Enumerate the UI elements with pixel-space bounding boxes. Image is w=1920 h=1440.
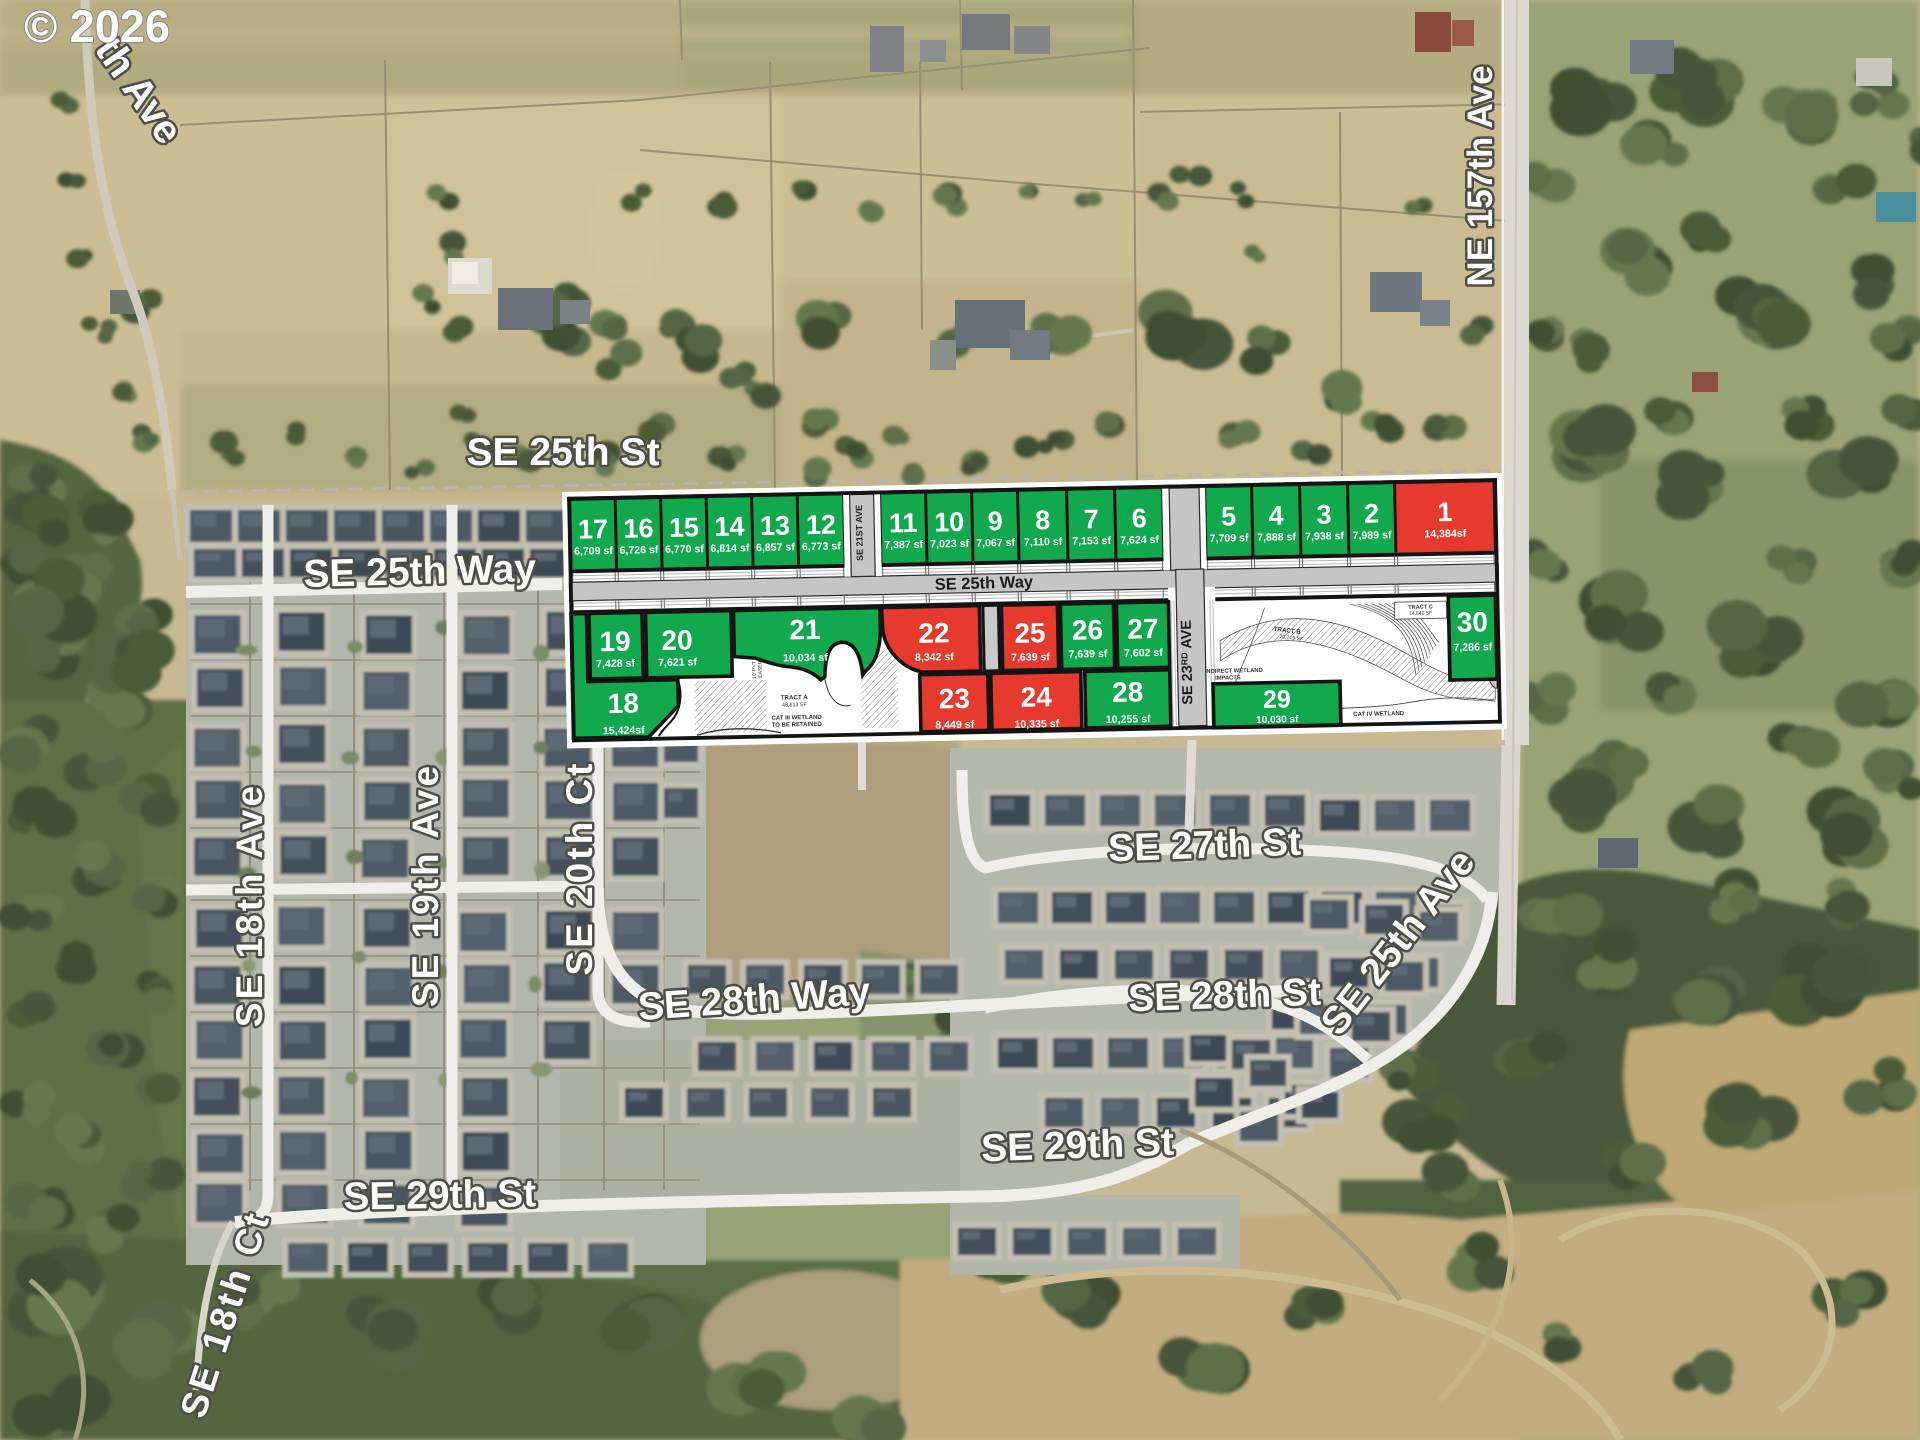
svg-text:7: 7 [1083, 504, 1099, 534]
svg-text:7,067 sf: 7,067 sf [976, 537, 1016, 550]
svg-text:3: 3 [1316, 499, 1332, 529]
svg-text:30: 30 [1456, 606, 1488, 638]
svg-text:29: 29 [1263, 685, 1291, 714]
svg-text:© 2026: © 2026 [24, 1, 170, 52]
svg-text:6,770 sf: 6,770 sf [665, 543, 705, 556]
svg-text:SE 28th St: SE 28th St [1127, 971, 1321, 1021]
svg-text:26: 26 [1072, 614, 1104, 646]
svg-text:7,428 sf: 7,428 sf [596, 658, 636, 671]
svg-text:7,888 sf: 7,888 sf [1257, 531, 1297, 544]
svg-text:7,639 sf: 7,639 sf [1011, 651, 1051, 664]
svg-text:6,709 sf: 6,709 sf [574, 545, 614, 558]
svg-text:8,342 sf: 8,342 sf [915, 651, 955, 664]
svg-text:48,613 SF: 48,613 SF [782, 702, 808, 709]
svg-text:14,384sf: 14,384sf [1424, 528, 1467, 541]
svg-text:IMPACTS: IMPACTS [1215, 675, 1241, 682]
svg-text:5: 5 [1221, 501, 1237, 531]
svg-text:7,938 sf: 7,938 sf [1305, 530, 1345, 543]
svg-text:15,424sf: 15,424sf [603, 724, 646, 737]
svg-text:7,709 sf: 7,709 sf [1210, 532, 1250, 545]
svg-text:7,602 sf: 7,602 sf [1124, 647, 1164, 660]
svg-text:8,449 sf: 8,449 sf [935, 719, 975, 732]
svg-text:1: 1 [1437, 497, 1453, 527]
svg-text:SE 21ST AVE: SE 21ST AVE [854, 505, 865, 561]
svg-text:27: 27 [1127, 613, 1159, 645]
svg-text:SE 27th St: SE 27th St [1107, 821, 1301, 871]
svg-text:7,153 sf: 7,153 sf [1072, 535, 1112, 548]
svg-text:11: 11 [889, 508, 918, 539]
svg-text:10,255 sf: 10,255 sf [1106, 713, 1151, 726]
svg-text:TRACT A: TRACT A [781, 694, 809, 702]
svg-text:TO BE RETAINED: TO BE RETAINED [772, 722, 823, 729]
svg-text:21: 21 [789, 614, 821, 646]
svg-text:15: 15 [669, 512, 700, 543]
svg-text:7,624 sf: 7,624 sf [1120, 534, 1160, 547]
svg-text:19: 19 [599, 626, 631, 658]
svg-text:23: 23 [938, 683, 970, 715]
svg-text:CAT III WETLAND: CAT III WETLAND [771, 715, 822, 722]
svg-text:12: 12 [806, 509, 837, 540]
svg-text:25: 25 [1014, 617, 1046, 649]
svg-text:6,726 sf: 6,726 sf [619, 544, 659, 557]
svg-text:7,621 sf: 7,621 sf [658, 656, 698, 669]
svg-text:SE 29th St: SE 29th St [980, 1121, 1174, 1171]
svg-text:7,110 sf: 7,110 sf [1024, 536, 1063, 549]
svg-text:9: 9 [987, 506, 1003, 536]
svg-text:28: 28 [1112, 676, 1144, 708]
svg-text:4: 4 [1268, 500, 1284, 530]
svg-text:INDIRECT WETLAND: INDIRECT WETLAND [1205, 668, 1263, 675]
svg-text:SE 25th St: SE 25th St [467, 431, 660, 474]
svg-text:14: 14 [714, 511, 745, 542]
svg-text:10,034 sf: 10,034 sf [783, 652, 828, 665]
svg-text:SE 18th Ave: SE 18th Ave [229, 783, 270, 1027]
svg-text:6,857 sf: 6,857 sf [756, 541, 796, 554]
svg-text:24: 24 [1020, 681, 1052, 713]
svg-text:22: 22 [918, 617, 950, 649]
svg-text:13: 13 [760, 510, 791, 541]
svg-text:SE 25th Way: SE 25th Way [303, 547, 537, 596]
svg-text:16: 16 [623, 513, 654, 544]
svg-text:SE 19th Ave: SE 19th Ave [405, 763, 446, 1007]
svg-text:SE 25th Way: SE 25th Way [934, 573, 1034, 594]
svg-text:7,023 sf: 7,023 sf [930, 538, 970, 551]
svg-text:6,773 sf: 6,773 sf [802, 540, 842, 553]
svg-text:10: 10 [934, 507, 965, 538]
svg-text:SE 29th St: SE 29th St [343, 1172, 537, 1218]
svg-text:7,989 sf: 7,989 sf [1352, 529, 1392, 542]
svg-text:6: 6 [1131, 503, 1147, 533]
svg-text:CAT IV WETLAND: CAT IV WETLAND [1353, 711, 1405, 718]
svg-text:8: 8 [1035, 505, 1051, 535]
svg-text:17: 17 [578, 514, 609, 545]
svg-text:14,840 SF: 14,840 SF [1409, 610, 1432, 616]
svg-text:2: 2 [1364, 498, 1380, 528]
svg-text:6,814 sf: 6,814 sf [710, 542, 750, 555]
svg-text:7,639 sf: 7,639 sf [1068, 648, 1108, 661]
svg-text:7,387 sf: 7,387 sf [884, 539, 924, 552]
svg-text:SE 20th Ct: SE 20th Ct [559, 760, 600, 975]
svg-text:7,286 sf: 7,286 sf [1453, 641, 1493, 654]
svg-text:NE 157th Ave: NE 157th Ave [1461, 65, 1500, 286]
svg-text:18: 18 [607, 687, 639, 719]
svg-text:20: 20 [661, 624, 693, 656]
